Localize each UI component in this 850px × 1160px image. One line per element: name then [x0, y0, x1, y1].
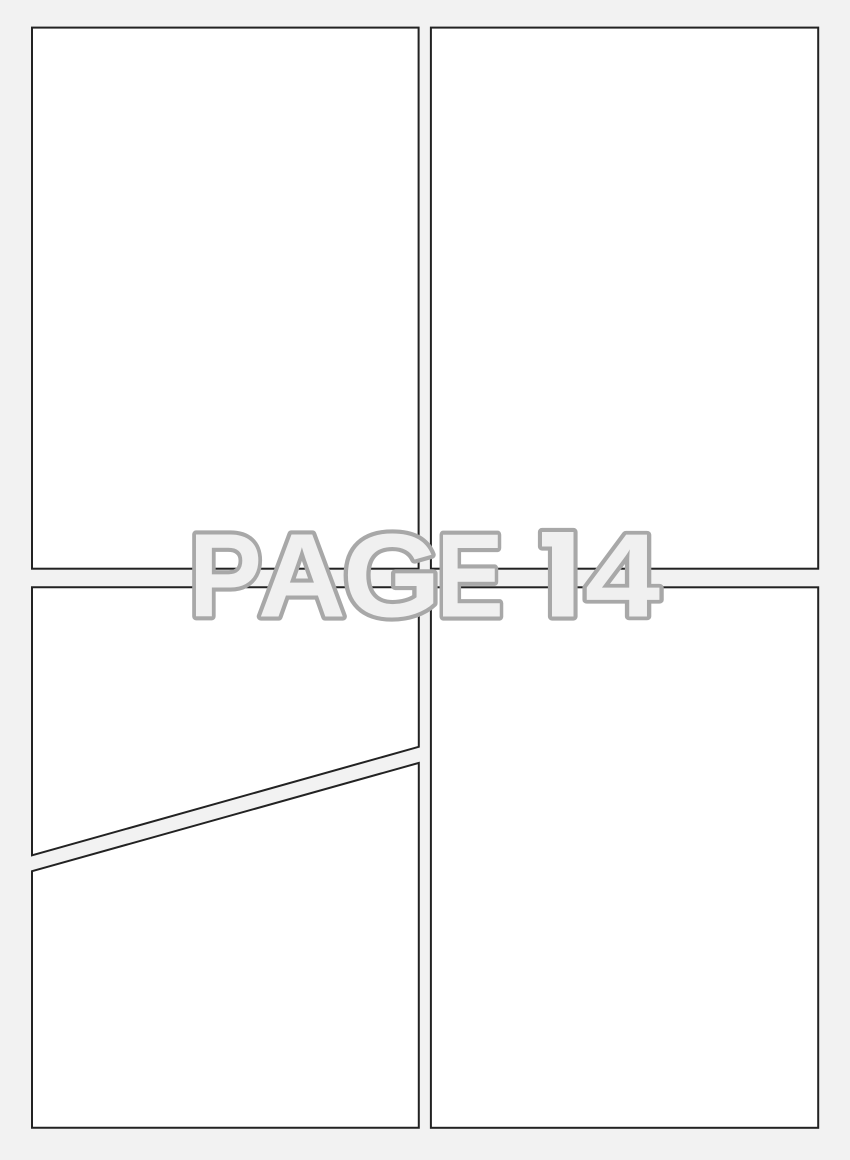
svg-text:4: 4 — [585, 509, 660, 642]
svg-text:A: A — [258, 509, 346, 642]
svg-text:P: P — [189, 510, 262, 643]
svg-text:E: E — [436, 510, 503, 643]
svg-text:G: G — [343, 510, 441, 643]
